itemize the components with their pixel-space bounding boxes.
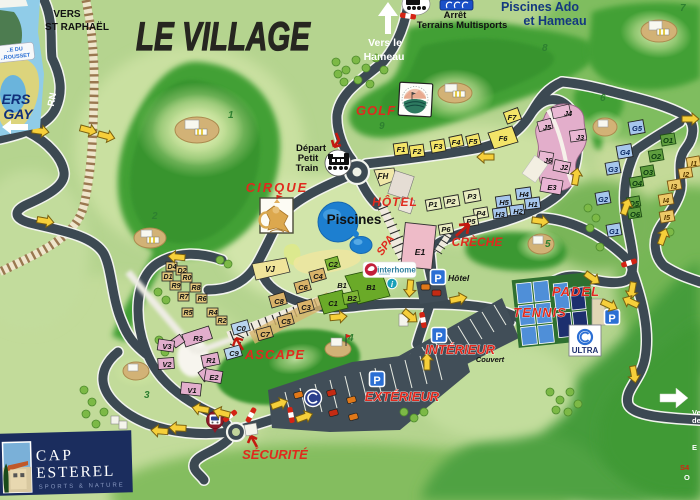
svg-text:Piscines: Piscines — [327, 212, 382, 227]
svg-text:R1: R1 — [206, 356, 216, 365]
svg-text:Hôtel: Hôtel — [448, 273, 470, 283]
svg-text:Train: Train — [296, 163, 319, 174]
svg-text:4: 4 — [347, 333, 354, 344]
svg-text:I1: I1 — [691, 159, 697, 168]
svg-text:V3: V3 — [162, 342, 172, 351]
svg-text:O4: O4 — [632, 179, 643, 188]
svg-text:I5: I5 — [664, 213, 671, 222]
svg-text:ULTRA: ULTRA — [572, 346, 599, 355]
svg-text:S4: S4 — [680, 463, 690, 472]
svg-text:R5: R5 — [184, 310, 193, 317]
svg-text:R6: R6 — [198, 296, 207, 303]
svg-text:Vers le: Vers le — [368, 37, 402, 49]
svg-text:V2: V2 — [162, 360, 172, 369]
svg-text:J6: J6 — [544, 156, 553, 165]
svg-text:C9: C9 — [229, 349, 239, 358]
svg-text:Terrains Multisports: Terrains Multisports — [417, 20, 508, 31]
svg-text:CRÈCHE: CRÈCHE — [452, 234, 504, 249]
svg-text:VERS: VERS — [53, 9, 81, 20]
svg-text:C1: C1 — [328, 299, 338, 308]
svg-text:J4: J4 — [564, 109, 573, 118]
svg-text:P6: P6 — [441, 225, 451, 234]
svg-text:G4: G4 — [620, 148, 631, 157]
svg-text:C8: C8 — [274, 297, 284, 306]
svg-text:1: 1 — [228, 110, 234, 121]
svg-text:O6: O6 — [630, 210, 641, 219]
svg-text:FH: FH — [378, 172, 389, 181]
svg-text:H5: H5 — [499, 198, 509, 207]
svg-text:F5: F5 — [469, 137, 479, 146]
svg-text:R8: R8 — [192, 285, 201, 292]
svg-text:J2: J2 — [560, 163, 569, 172]
svg-text:HÔTEL: HÔTEL — [372, 194, 418, 209]
svg-text:B1: B1 — [366, 283, 376, 292]
svg-text:P1: P1 — [428, 200, 437, 209]
svg-text:R4: R4 — [209, 310, 218, 317]
svg-text:SÉCURITÉ: SÉCURITÉ — [242, 447, 308, 462]
svg-text:C6: C6 — [298, 283, 308, 292]
svg-text:2: 2 — [151, 211, 158, 222]
svg-text:Couvert: Couvert — [476, 355, 505, 364]
svg-text:ST RAPHAËL: ST RAPHAËL — [45, 20, 109, 33]
svg-text:H1: H1 — [528, 200, 538, 209]
svg-text:F3: F3 — [434, 142, 444, 151]
svg-text:O: O — [684, 473, 690, 482]
svg-text:PADEL: PADEL — [552, 284, 600, 299]
svg-text:D4: D4 — [168, 264, 177, 271]
svg-text:LE VILLAGE: LE VILLAGE — [136, 15, 311, 59]
svg-text:Piscines Ado: Piscines Ado — [501, 0, 579, 14]
svg-text:D2: D2 — [178, 268, 187, 275]
svg-text:F2: F2 — [413, 147, 423, 156]
svg-text:I4: I4 — [663, 196, 670, 205]
svg-text:F6: F6 — [499, 134, 509, 143]
svg-text:9: 9 — [379, 121, 385, 132]
svg-text:C5: C5 — [281, 317, 291, 326]
svg-text:C3: C3 — [301, 303, 311, 312]
svg-text:TENNIS: TENNIS — [513, 305, 567, 320]
svg-text:H2: H2 — [513, 207, 523, 216]
svg-text:et Hameau: et Hameau — [523, 14, 586, 28]
svg-text:B1: B1 — [337, 281, 347, 290]
svg-text:H3: H3 — [495, 210, 505, 219]
svg-text:CAP: CAP — [36, 447, 74, 465]
svg-text:EXTÉRIEUR: EXTÉRIEUR — [365, 389, 440, 404]
svg-text:5: 5 — [545, 239, 551, 250]
svg-text:CIRQUE: CIRQUE — [246, 180, 309, 195]
svg-text:G5: G5 — [632, 124, 643, 133]
svg-text:VJ: VJ — [265, 265, 275, 274]
svg-text:Hameau: Hameau — [364, 51, 405, 63]
svg-text:J5: J5 — [543, 123, 552, 132]
svg-text:R7: R7 — [180, 294, 190, 301]
svg-text:C0: C0 — [236, 324, 246, 333]
svg-text:R0: R0 — [183, 275, 192, 282]
svg-text:H4: H4 — [519, 190, 529, 199]
svg-text:G1: G1 — [609, 227, 619, 236]
svg-text:D1: D1 — [164, 274, 173, 281]
svg-text:I3: I3 — [671, 182, 678, 191]
svg-text:O2: O2 — [651, 152, 662, 161]
svg-text:ESTEREL: ESTEREL — [36, 463, 115, 482]
svg-text:B2: B2 — [347, 294, 357, 303]
svg-text:E2: E2 — [209, 373, 219, 382]
svg-text:de: de — [692, 416, 700, 425]
svg-text:F4: F4 — [452, 138, 462, 147]
svg-text:O3: O3 — [643, 168, 654, 177]
svg-text:7: 7 — [680, 3, 686, 14]
svg-text:V1: V1 — [187, 386, 196, 395]
svg-text:ERS: ERS — [2, 91, 31, 107]
svg-text:8: 8 — [542, 43, 548, 54]
svg-text:F7: F7 — [508, 113, 518, 122]
svg-text:R2: R2 — [218, 318, 227, 325]
svg-text:E3: E3 — [547, 183, 557, 192]
svg-text:G3: G3 — [608, 165, 619, 174]
svg-text:C7: C7 — [260, 330, 270, 339]
svg-text:P2: P2 — [446, 197, 456, 206]
svg-text:G2: G2 — [598, 195, 609, 204]
svg-text:P4: P4 — [476, 209, 486, 218]
svg-text:E1: E1 — [415, 247, 426, 257]
svg-text:6: 6 — [600, 93, 606, 104]
svg-text:O1: O1 — [663, 136, 673, 145]
svg-text:J3: J3 — [576, 133, 585, 142]
svg-text:C2: C2 — [328, 260, 338, 269]
svg-text:GAY: GAY — [3, 106, 34, 122]
svg-text:interhome: interhome — [377, 266, 416, 275]
svg-text:E: E — [692, 443, 697, 452]
svg-text:R9: R9 — [172, 283, 181, 290]
svg-text:ASCAPE: ASCAPE — [244, 347, 305, 362]
svg-text:F1: F1 — [397, 145, 406, 154]
svg-text:R3: R3 — [193, 334, 203, 343]
svg-text:I2: I2 — [683, 170, 690, 179]
svg-text:3: 3 — [144, 390, 150, 401]
svg-text:GOLF: GOLF — [356, 103, 396, 118]
svg-text:C4: C4 — [313, 272, 323, 281]
svg-text:P3: P3 — [467, 192, 477, 201]
